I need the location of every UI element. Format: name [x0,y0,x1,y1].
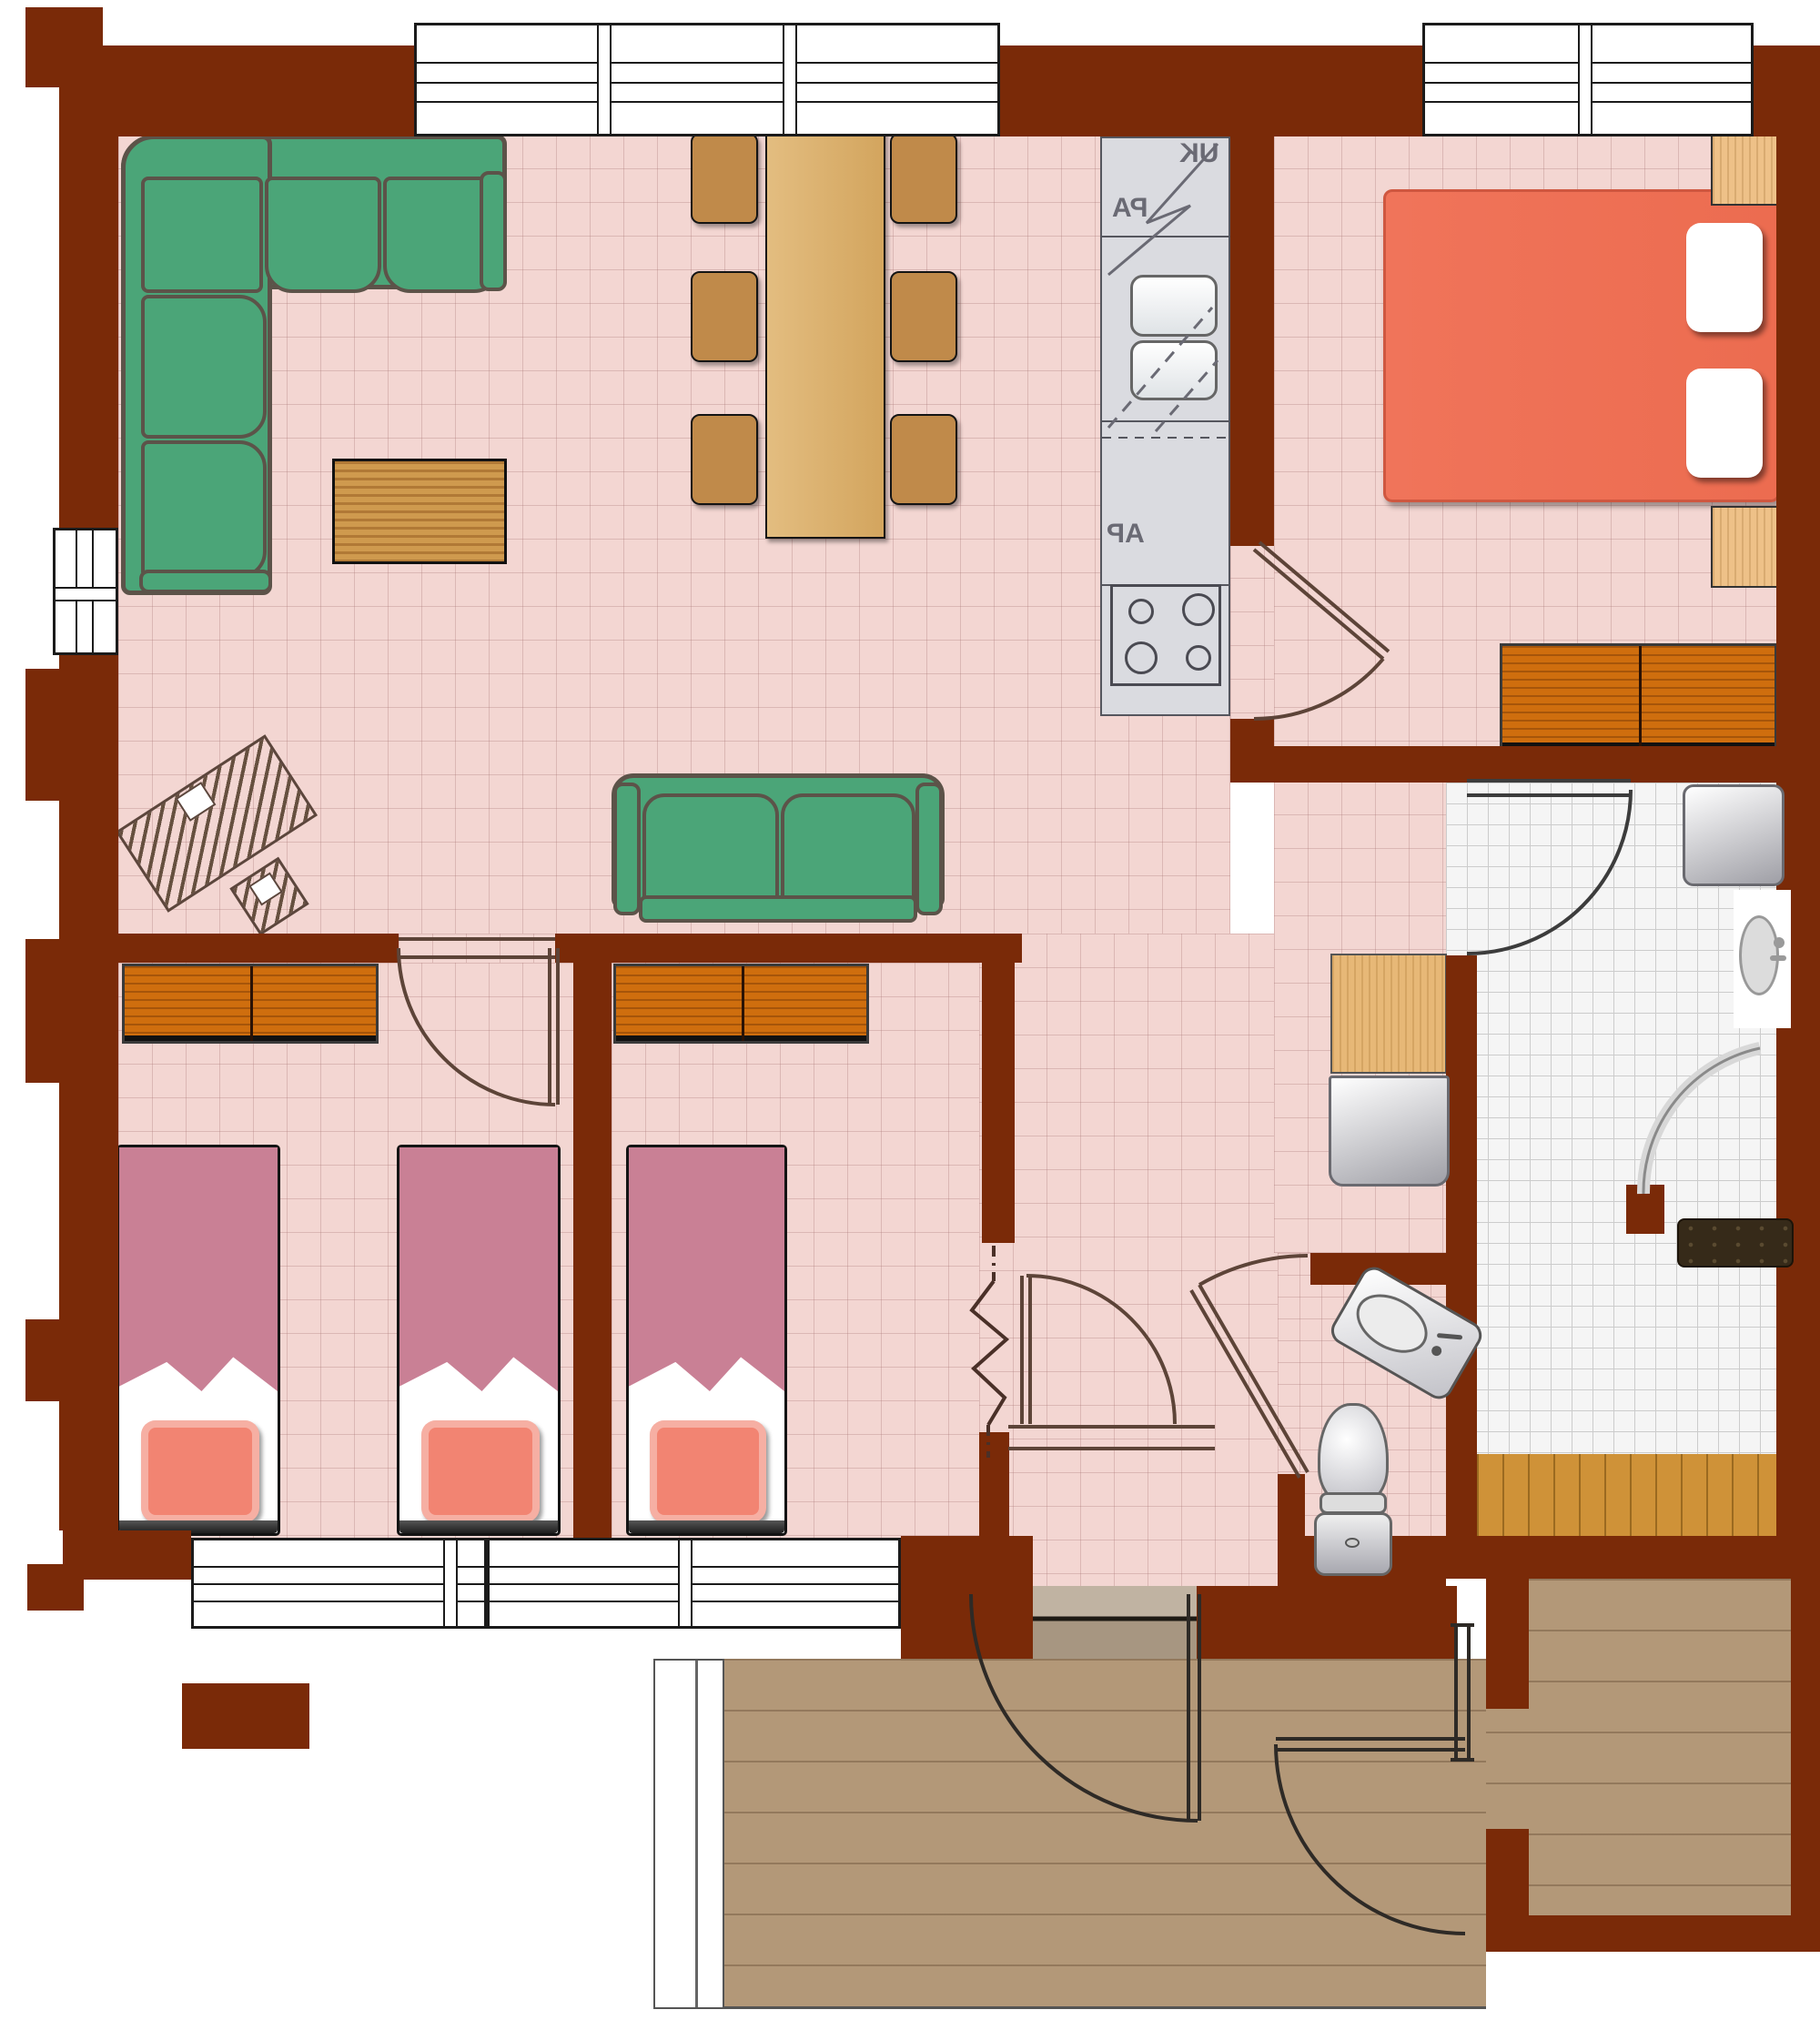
window-mullion [1578,25,1592,134]
wall-segment [555,934,1022,963]
wall-segment [1000,45,1422,136]
single-bed [116,1145,280,1536]
wall-segment [1486,1579,1529,1709]
window-line [417,101,997,103]
wall-segment [59,1401,118,1530]
bath-sink-faucet [1770,955,1786,961]
wall-segment [1230,136,1274,546]
kitchen-counter-divider [1102,236,1228,237]
wardrobe-bedroom [122,964,379,1044]
wall-segment [25,669,118,801]
single-bed [626,1145,787,1536]
window-bedroom-a [191,1538,487,1629]
wall-segment [1486,1915,1820,1952]
wall-segment [573,963,612,1538]
wall-segment [1197,1586,1457,1659]
bed-pillow [141,1420,259,1522]
hall-appliance [1329,1076,1450,1187]
corner-sofa-cushion [141,295,267,439]
two-seat-sofa-cushion [781,793,915,910]
kitchen-label-ap: AP [1107,519,1145,550]
dining-chair [890,414,957,505]
washing-machine [1683,784,1785,886]
two-seat-sofa-arm [613,783,641,915]
window-left [53,528,118,655]
double-bed [1383,189,1780,502]
window-line [194,1601,484,1602]
wall-pier [27,1564,84,1611]
nightstand [1711,127,1782,206]
bed-footboard [399,1520,558,1533]
dining-chair [691,133,758,224]
dining-chair [691,414,758,505]
wall-segment [59,1083,118,1319]
bed-blanket [399,1147,558,1391]
kitchen-label-uk: UK [1179,138,1218,169]
wall-segment [979,1432,1009,1538]
bed-blanket [119,1147,278,1391]
wall-shower-stub [1626,1185,1664,1234]
wardrobe-bedroom [613,964,869,1044]
bathroom-wood-bench-strip [1477,1454,1779,1545]
wall-segment [1278,1474,1305,1538]
kitchen-stove [1110,584,1221,686]
toilet-seat-hinge [1319,1492,1387,1514]
bed-blanket [629,1147,784,1391]
wall-segment [982,963,1015,1243]
window-mullion [443,1540,458,1626]
toilet-bowl [1318,1403,1389,1505]
wardrobe-divider [1639,646,1642,748]
kitchen-sink-basin [1130,275,1218,337]
window-line [417,62,997,64]
wall-segment [103,45,414,136]
corner-sofa-cushion [265,177,381,293]
stove-burner [1125,641,1158,674]
window-mullion [56,587,116,601]
bath-sink-faucet [1774,937,1785,948]
toilet-flush-button [1345,1538,1360,1548]
window-line [490,1566,898,1568]
window-line [490,1601,898,1602]
corner-sofa-corner-cushion [141,177,263,293]
floor-bedroom-door-gap [399,934,555,963]
sketched-desk [133,761,326,948]
dining-chair [691,271,758,362]
window-line [490,1583,898,1585]
bed-pillow [650,1420,766,1522]
floor-side-room [1486,1579,1791,1915]
single-bed [397,1145,561,1536]
floor-terrace-deck [722,1659,1486,2009]
corner-sofa-cushion [141,440,267,579]
deck-step [653,1659,724,2009]
window-bedroom-b [487,1538,901,1629]
bath-mat [1677,1218,1794,1267]
deck-step-line [695,1661,698,2007]
wall-segment [1776,45,1820,784]
coffee-table [332,459,507,564]
wall-pier [182,1683,309,1749]
window-mullion [597,25,612,134]
stove-burner [1186,645,1211,671]
entry-threshold [1033,1586,1197,1659]
two-seat-sofa [612,773,945,928]
hall-cabinet [1330,954,1447,1074]
corner-sofa-arm-bottom [139,570,272,593]
stove-burner [1128,599,1154,624]
wall-segment [59,801,118,939]
window-top-living [414,23,1000,136]
window-mullion [678,1540,693,1626]
two-seat-sofa-arm [915,783,943,915]
window-line [417,82,997,84]
wall-segment [59,87,118,530]
two-seat-sofa-cushion [642,793,779,910]
wall-segment [25,939,118,1083]
stove-burner [1182,593,1215,626]
bed-footboard [629,1520,784,1533]
floor-master-door-gap [1230,544,1274,721]
wall-segment [1446,955,1477,1547]
wall-segment [59,653,118,669]
wardrobe-divider [250,966,253,1041]
wall-segment [25,7,103,87]
kitchen-counter-divider-dashed [1102,437,1228,439]
nightstand [1711,506,1782,588]
dining-chair [890,271,957,362]
bed-pillow [1686,369,1763,478]
wall-segment [1791,1536,1820,1952]
bath-sink-panel [1734,890,1791,1028]
kitchen-sink-basin [1130,340,1218,400]
wall-segment [25,1319,118,1401]
floor-plan-page: { "plan": { "type": "apartment-floor-pla… [0,0,1820,2030]
window-line [194,1583,484,1585]
wall-segment [901,1536,1033,1659]
wall-segment [1446,1536,1820,1579]
floor-hallway [979,934,1278,1586]
wardrobe-divider [742,966,744,1041]
wardrobe-master [1500,643,1777,751]
dining-chair [890,133,957,224]
dining-table [765,102,885,539]
toilet [1310,1401,1398,1576]
corner-sofa-arm-right [480,171,507,291]
kitchen-counter-divider [1102,420,1228,422]
window-line [194,1566,484,1568]
window-mullion [783,25,797,134]
two-seat-sofa-front [639,895,917,923]
wall-segment [118,934,399,963]
window-top-master [1422,23,1754,136]
kitchen-label-pa: PA [1112,193,1148,224]
wall-segment [1486,1829,1529,1915]
bed-pillow [421,1420,540,1522]
wall-segment [1230,746,1779,783]
bed-pillow [1686,223,1763,332]
